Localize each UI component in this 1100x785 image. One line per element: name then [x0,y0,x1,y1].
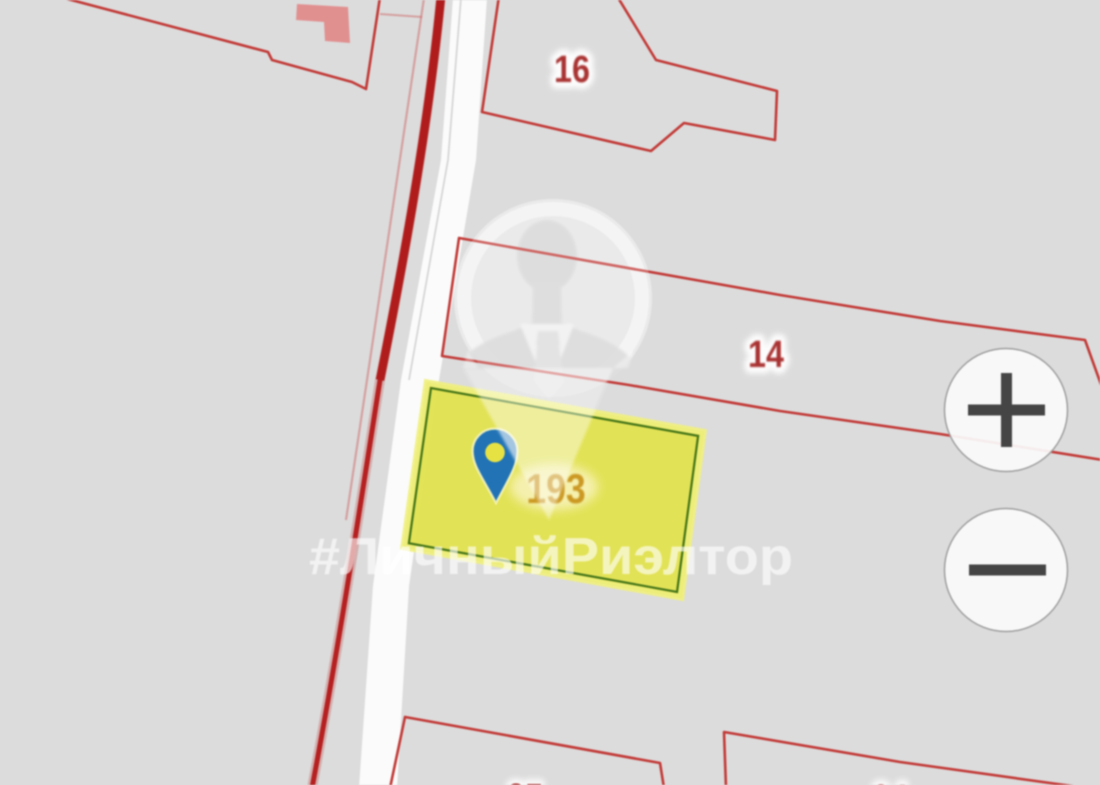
svg-text:24: 24 [872,778,908,785]
svg-text:25: 25 [507,777,543,785]
svg-text:14: 14 [748,334,784,376]
svg-text:16: 16 [554,49,590,91]
svg-text:#ЛичныйРиэлтор: #ЛичныйРиэлтор [309,528,793,586]
